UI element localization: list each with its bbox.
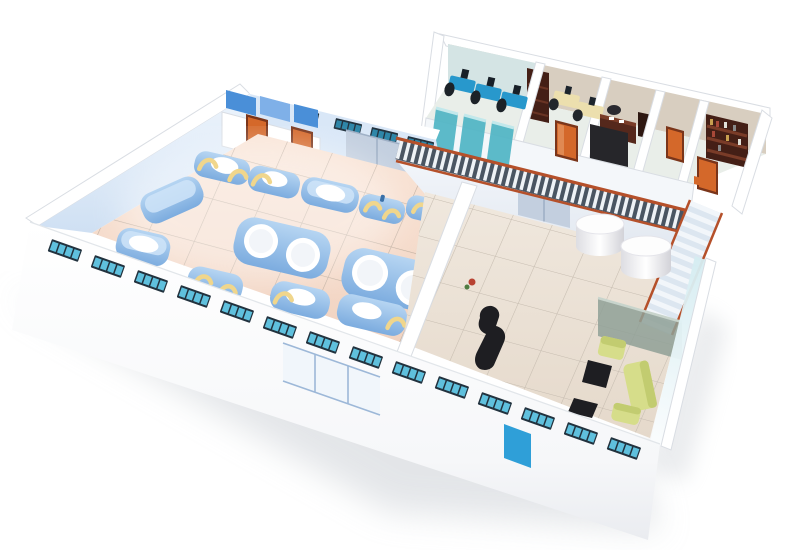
round-table <box>621 236 671 279</box>
office-door-orange <box>697 156 718 195</box>
wall-plant <box>469 279 476 286</box>
office-door-orange <box>666 126 684 163</box>
floor-plan-rendering <box>0 0 800 550</box>
wall-plant <box>465 285 470 290</box>
floor-plan-stage <box>0 0 800 550</box>
round-table <box>576 214 624 256</box>
office-door-orange <box>555 120 578 162</box>
